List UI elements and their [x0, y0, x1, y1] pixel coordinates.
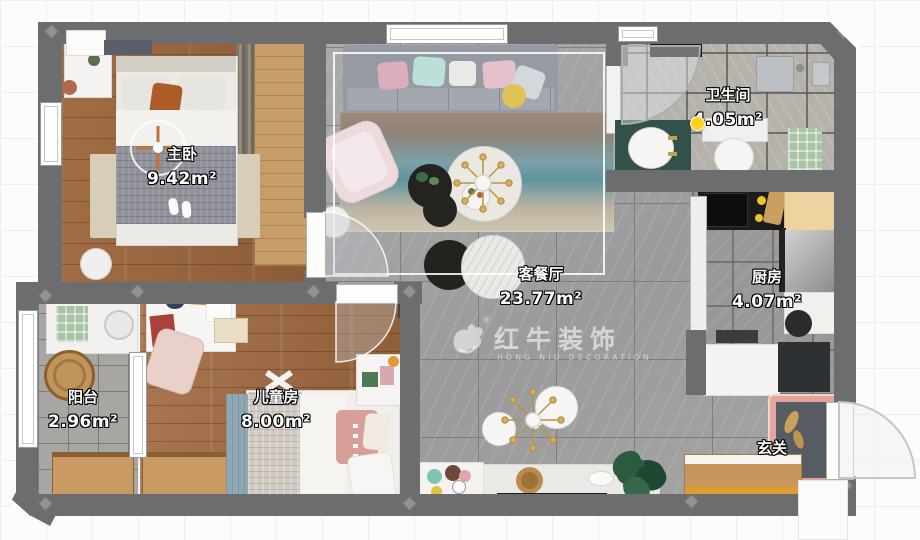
- window-master-left: [40, 102, 62, 166]
- bull-logo-icon: [448, 320, 488, 362]
- laundry-basket: [56, 306, 88, 342]
- door-mat: [798, 480, 848, 540]
- wall-bottom: [16, 494, 856, 516]
- gold-bowl-inner: [521, 472, 538, 489]
- watermark-subtitle: HONG NIU DECORATION: [497, 353, 652, 362]
- ceiling-frame-line: [333, 52, 605, 275]
- window-living-top: [386, 24, 508, 44]
- white-bowl: [588, 471, 614, 486]
- room-name: 玄关: [727, 440, 817, 457]
- watermark: ® 红牛装饰 HONG NIU DECORATION: [448, 318, 628, 366]
- room-label-living: 客餐厅 23.77m²: [496, 266, 586, 308]
- bay-window-box: [52, 452, 134, 498]
- toy-ball-teal: [427, 469, 442, 484]
- shelf-toy: [388, 356, 399, 367]
- window-balcony-left: [18, 310, 38, 448]
- open-book: [214, 318, 248, 343]
- lemon: [755, 214, 763, 222]
- bed-headboard: [116, 56, 236, 72]
- lemon: [757, 196, 766, 205]
- panorama-marker-dot[interactable]: [690, 116, 705, 131]
- shoe-cabinet: [684, 454, 802, 498]
- room-label-balcony: 阳台 2.96m²: [38, 389, 128, 431]
- room-name: 厨房: [722, 269, 812, 286]
- kitchen-cabinet: [704, 344, 780, 396]
- kitchen-sink: [704, 193, 748, 227]
- ac-unit: [104, 40, 152, 55]
- window-bath-top: [618, 26, 658, 42]
- terracotta-pot: [62, 80, 77, 95]
- fridge: [778, 342, 830, 392]
- room-name: 客餐厅: [496, 266, 586, 283]
- wall-bathroom-bottom: [606, 170, 856, 192]
- pillow-dots: [353, 418, 358, 458]
- gold-tap: [668, 136, 677, 140]
- vanity-sink: [628, 127, 674, 169]
- green-towel: [788, 128, 822, 170]
- room-area: 2.96m²: [38, 413, 128, 432]
- bed-pillow-right: [177, 75, 227, 111]
- room-label-kitchen: 厨房 4.07m²: [722, 269, 812, 311]
- pendant-globe-small: [527, 414, 542, 429]
- cooking-pot: [785, 310, 812, 337]
- bedroom-stool: [80, 248, 112, 280]
- watermark-brand: 红牛装饰: [494, 320, 622, 356]
- wall-right-upper: [834, 22, 856, 404]
- room-area: 9.42m²: [137, 170, 227, 189]
- room-area: 8.00m²: [231, 413, 321, 432]
- kitchen-shelf: [716, 330, 758, 343]
- bath-fixture: [812, 62, 830, 86]
- room-label-master: 主卧 9.42m²: [137, 146, 227, 188]
- room-name: 卫生间: [683, 87, 773, 104]
- master-door-leaf: [306, 212, 326, 278]
- wall-bedroom-right: [304, 22, 326, 218]
- room-name: 儿童房: [231, 389, 321, 406]
- kitchen-counter-wood: [784, 186, 838, 234]
- gold-tap: [668, 152, 677, 156]
- room-area: 23.77m²: [496, 290, 586, 309]
- shelf-book: [380, 366, 394, 385]
- slipper: [181, 201, 191, 219]
- window-balcony-kids: [129, 352, 147, 458]
- gold-bowl: [516, 467, 543, 494]
- wall-shelf: [66, 30, 106, 56]
- floor-plan-canvas: 主卧 9.42m² 卫生间 4.05m² 客餐厅 23.77m² 厨房 4.07…: [0, 0, 920, 540]
- kids-door-leaf: [336, 284, 398, 304]
- bed-duvet: [116, 110, 236, 148]
- kitchen-sliding-door: [690, 196, 707, 332]
- kids-pillow-small: [362, 413, 392, 452]
- toy-ball-white: [452, 480, 466, 494]
- wall-kids-right: [400, 282, 420, 496]
- entry-door-leaf: [826, 402, 854, 480]
- wardrobe: [254, 42, 308, 266]
- wall-kitchen-stub: [686, 330, 706, 395]
- room-label-kids: 儿童房 8.00m²: [231, 389, 321, 431]
- laundry-sink: [104, 310, 134, 340]
- shelf-plant: [362, 372, 378, 387]
- room-label-entry: 玄关: [727, 440, 817, 457]
- room-area: 4.07m²: [722, 293, 812, 312]
- room-name: 阳台: [38, 389, 128, 406]
- registered-mark: ®: [482, 316, 491, 326]
- room-name: 主卧: [137, 146, 227, 163]
- shower-knob: [796, 64, 804, 72]
- wall-kids-top: [62, 282, 338, 304]
- pendant-globe: [482, 412, 516, 446]
